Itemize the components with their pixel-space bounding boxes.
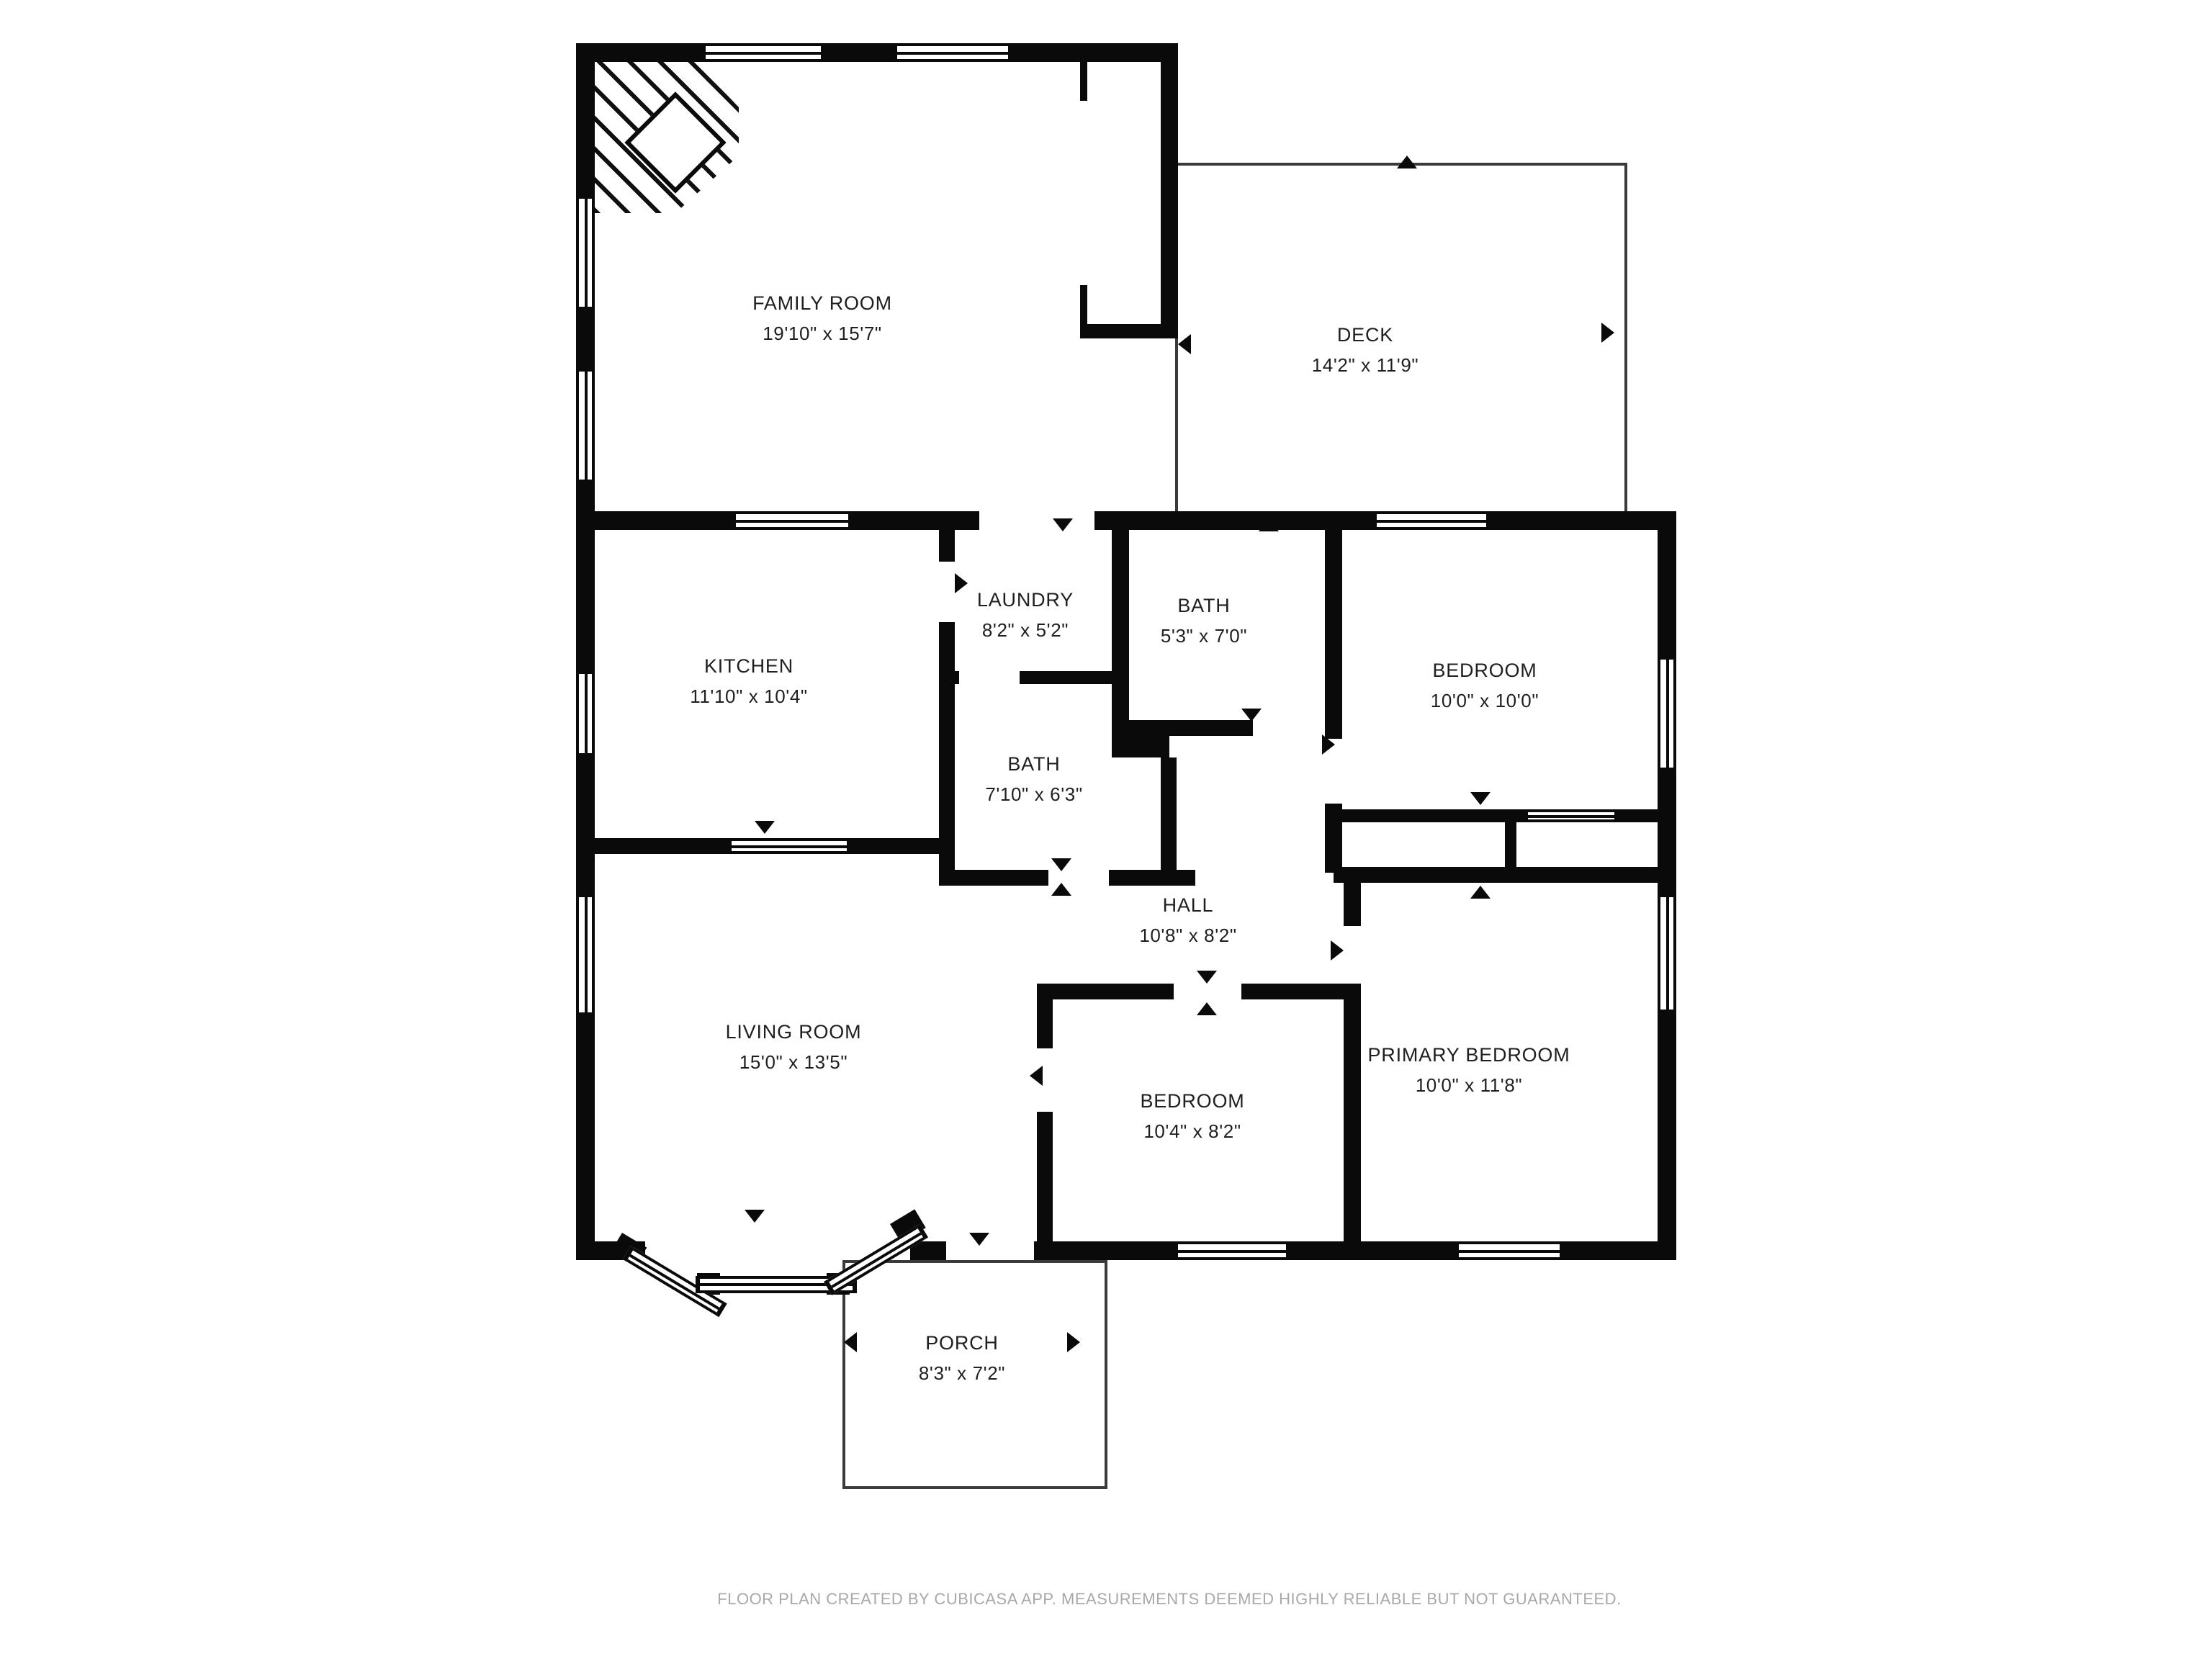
door-marker [1197,971,1217,984]
door-marker [1030,1066,1043,1086]
window-symbol [727,838,851,854]
room-name: BEDROOM [1269,655,1701,686]
room-label-porch: PORCH 8'3" x 7'2" [746,1328,1178,1388]
window-symbol [576,367,595,484]
door-marker [1322,734,1335,755]
room-label-bath-upper: BATH 5'3" x 7'0" [988,590,1420,650]
wall [1161,720,1253,736]
room-label-family-room: FAMILY ROOM 19'10" x 15'7" [606,288,1038,348]
room-label-deck: DECK 14'2" x 11'9" [1149,320,1581,379]
floor-plan-canvas: FAMILY ROOM 19'10" x 15'7" DECK 14'2" x … [0,0,2212,1659]
room-dimensions: 10'8" x 8'2" [972,921,1404,950]
window-symbol [1658,893,1676,1014]
door-marker [1470,792,1491,805]
door-marker [1241,709,1262,721]
window-symbol [893,43,1012,62]
wall [1080,43,1087,101]
door-marker [745,1210,765,1223]
wall [1053,984,1174,999]
window-symbol [1455,1241,1564,1260]
wall [595,838,727,854]
room-dimensions: 10'4" x 8'2" [976,1117,1408,1146]
window-symbol [732,511,853,530]
window-symbol [1174,1241,1290,1260]
wall [939,870,1048,886]
door-marker [1259,518,1279,531]
room-name: DECK [1149,320,1581,351]
room-name: KITCHEN [533,651,965,682]
room-dimensions: 10'0" x 10'0" [1269,686,1701,715]
room-label-bath-middle: BATH 7'10" x 6'3" [818,749,1250,809]
room-dimensions: 7'10" x 6'3" [818,780,1250,809]
room-dimensions: 15'0" x 13'5" [577,1048,1010,1076]
wall [1658,511,1676,1260]
footer-disclaimer: FLOOR PLAN CREATED BY CUBICASA APP. MEAS… [634,1591,1705,1609]
door-marker [1601,323,1614,343]
room-name: LIVING ROOM [577,1017,1010,1048]
room-label-bedroom-upper: BEDROOM 10'0" x 10'0" [1269,655,1701,715]
wall [939,530,955,562]
door-marker [755,821,775,834]
door-marker [1051,858,1071,871]
wall [1334,867,1658,883]
room-name: BATH [988,590,1420,621]
door-marker [969,1233,989,1246]
door-marker [1053,518,1073,531]
wall [1334,809,1524,822]
wall [842,838,939,854]
room-name: HALL [972,890,1404,921]
closet-door-symbol [1524,809,1619,822]
room-dimensions: 10'0" x 11'8" [1253,1071,1685,1100]
room-label-primary-bedroom: PRIMARY BEDROOM 10'0" x 11'8" [1253,1040,1685,1100]
room-dimensions: 11'10" x 10'4" [533,682,965,711]
door-marker [1197,1002,1217,1015]
window-symbol [576,893,595,1017]
wall [1037,984,1053,1048]
wall [1161,43,1178,338]
door-marker [1470,886,1491,899]
room-dimensions: 5'3" x 7'0" [988,621,1420,650]
room-name: PORCH [746,1328,1178,1359]
room-label-kitchen: KITCHEN 11'10" x 10'4" [533,651,965,711]
door-marker [1397,156,1417,168]
window-symbol [1372,511,1491,530]
room-name: BATH [818,749,1250,780]
room-label-hall: HALL 10'8" x 8'2" [972,890,1404,950]
room-name: PRIMARY BEDROOM [1253,1040,1685,1071]
room-dimensions: 19'10" x 15'7" [606,319,1038,348]
room-label-living-room: LIVING ROOM 15'0" x 13'5" [577,1017,1010,1076]
window-symbol [576,194,595,311]
window-symbol [701,43,825,62]
wall [576,43,1178,62]
room-name: FAMILY ROOM [606,288,1038,319]
room-dimensions: 14'2" x 11'9" [1149,351,1581,379]
wall [1109,870,1195,886]
room-dimensions: 8'3" x 7'2" [746,1359,1178,1388]
